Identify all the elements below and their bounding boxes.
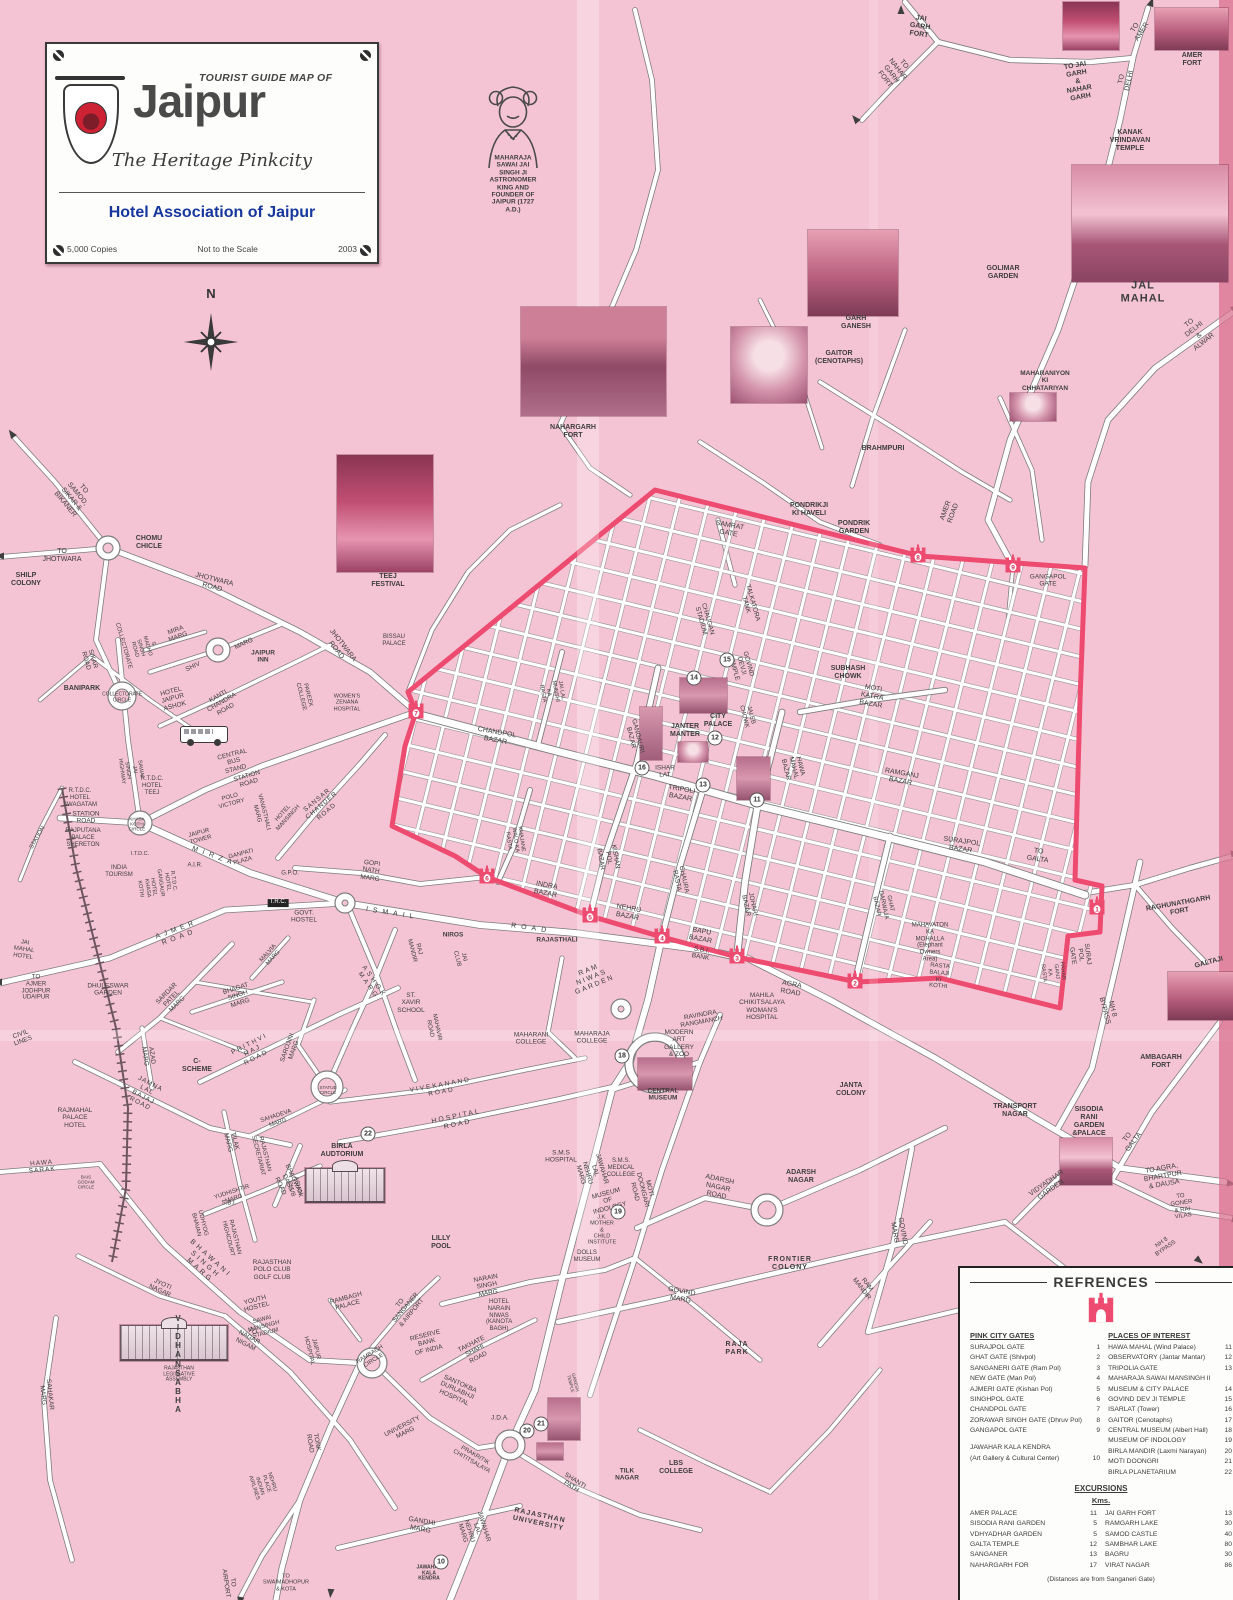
gates-heading: PINK CITY GATES: [970, 1331, 1100, 1340]
map-label: BAIS GODAM CIRCLE: [78, 1174, 95, 1189]
reference-row: GALTA TEMPLE12: [970, 1540, 1097, 1550]
place-number-marker-18: 18: [615, 1049, 630, 1064]
reference-row: MUSEUM OF INDOLOGY19: [1108, 1436, 1232, 1446]
map-label: MAHAVATON KA MOHALLA (Elephant Owners Ar…: [912, 923, 949, 964]
map-label: SURAJ POL GATE: [1068, 943, 1093, 967]
reference-row: SAMOD CASTLE40: [1105, 1530, 1232, 1540]
excursions-unit: Kms.: [970, 1496, 1232, 1505]
map-label: I.T.D.C.: [131, 851, 149, 857]
map-label: R.T.D.C. HOTEL GANGAUR: [156, 867, 178, 897]
reference-row: BAGRU30: [1105, 1550, 1232, 1560]
title-rule-left: [970, 1282, 1047, 1283]
svg-text:9: 9: [1011, 565, 1015, 572]
places-heading: PLACES OF INTEREST: [1108, 1331, 1232, 1340]
map-label: T.R.C.: [268, 899, 289, 907]
teej-festival-photo: [337, 455, 433, 572]
vidhan-sabha-sketch: [120, 1325, 228, 1361]
places-list: HAWA MAHAL (Wind Palace)11OBSERVATORY (J…: [1108, 1343, 1232, 1478]
map-label: MAHILA CHIKITSALAYA WOMAN'S HOSPITAL: [739, 992, 785, 1022]
city-gate-marker-6: 6: [479, 865, 495, 889]
map-label: NIROS: [443, 931, 464, 938]
reference-row: TRIPOLIA GATE13: [1108, 1364, 1232, 1374]
excursions-footnote: (Distances are from Sanganeri Gate): [970, 1576, 1232, 1583]
map-label: BIRLA AUDTORIUM: [321, 1143, 364, 1159]
map-label: S.B.I.: [222, 1201, 237, 1208]
city-gate-marker-5: 5: [582, 904, 598, 928]
screw-icon: [360, 245, 371, 256]
map-label: MAHARANIYON KI CHHATARIYAN: [1020, 370, 1069, 392]
reference-row: SANGANER13: [970, 1550, 1097, 1560]
map-label: GARH GANESH: [841, 315, 871, 331]
compass-rose: N: [176, 286, 246, 388]
title-footer: 5,000 Copies Not to the Scale 2003: [67, 244, 357, 254]
jaipur-tourist-map: MAHARAJA SAWAI JAI SINGH JI ASTRONOMER K…: [0, 0, 1233, 1600]
map-label: PAHAR GANJ KA RASTA: [1039, 961, 1066, 982]
svg-text:5: 5: [588, 915, 592, 922]
reference-row: CENTRAL MUSEUM (Albert Hall)18: [1108, 1426, 1232, 1436]
map-label: R.T.D.C. HOTEL SWAGATAM: [63, 788, 97, 808]
map-label: CITY PALACE: [704, 713, 732, 729]
city-gate-marker-1: 1: [1089, 896, 1105, 920]
map-label: GAITOR (CENOTAPHS): [815, 350, 863, 366]
reference-row: GANGAPOL GATE9: [970, 1426, 1100, 1436]
title-divider: [59, 192, 365, 193]
reference-row: SINGHPOL GATE6: [970, 1395, 1100, 1405]
map-label: JAI GARH FORT: [908, 14, 932, 41]
map-label: GOLIMAR GARDEN: [986, 265, 1019, 281]
map-label: SUBHASH CHOWK: [831, 665, 866, 681]
city-gate-marker-3: 3: [729, 945, 745, 969]
scale-note: Not to the Scale: [197, 244, 257, 254]
map-label: V I D H A N S A B H A: [175, 1314, 181, 1414]
place-number-marker-22: 22: [361, 1127, 376, 1142]
map-label: MOTI KATRA BAZAR: [858, 683, 885, 711]
garh-ganesh-photo: [808, 230, 898, 316]
place-number-marker-10: 10: [434, 1555, 449, 1570]
map-label: RASTA BALAJI KI KOTHI: [928, 963, 950, 992]
map-label: J.D.A.: [491, 1414, 509, 1421]
pink-gate-icon: [970, 1292, 1232, 1328]
map-label: RAJA PARK: [725, 1341, 748, 1357]
compass-star-icon: [176, 301, 246, 383]
map-label: LILLY POOL: [431, 1235, 451, 1251]
map-label: TO JHOTWARA: [42, 548, 81, 564]
svg-text:4: 4: [660, 936, 664, 943]
nahargarh-fort-photo: [521, 307, 666, 416]
map-label: TRANSPORT NAGAR: [993, 1103, 1037, 1119]
reference-row: GOVIND DEV JI TEMPLE15: [1108, 1395, 1232, 1405]
reference-row: NEW GATE (Man Pol)4: [970, 1374, 1100, 1384]
map-label: JAI MAHAL HOTEL: [12, 938, 35, 961]
map-label: WOMEN'S ZENANA HOSPITAL: [334, 694, 361, 713]
svg-text:3: 3: [735, 956, 739, 963]
map-label: RAJASTHAN LEGISLATIVE ASSEMBLY: [163, 1366, 195, 1383]
map-label: BISSAU PALACE: [382, 634, 405, 648]
map-label: JAIPUR INN: [251, 650, 275, 665]
birla-auditorium-sketch: [305, 1168, 385, 1203]
map-label: GOPI NATH MARG: [360, 859, 382, 884]
title-rule-right: [1155, 1282, 1232, 1283]
map-label: CENTRAL MUSEUM: [648, 1088, 679, 1103]
galtaji-photo: [1168, 972, 1233, 1020]
map-label: J.K. MOTHER & CHILD INSTITUTE: [588, 1214, 616, 1245]
map-label: INDIA TOURISM: [105, 865, 133, 879]
map-label: SAHAKAR MARG: [37, 1379, 55, 1411]
map-label: C-SCHEME: [182, 1058, 212, 1074]
jal-mahal-photo: [1072, 165, 1228, 282]
place-number-marker-12: 12: [708, 731, 723, 746]
reference-row: SURAJPOL GATE1: [970, 1343, 1100, 1353]
reference-row: MUSEUM & CITY PALACE14: [1108, 1385, 1232, 1395]
map-label: G.P.O.: [281, 871, 299, 878]
place-number-marker-20: 20: [520, 1424, 535, 1439]
map-label: TONK ROAD: [304, 1432, 322, 1453]
svg-text:1: 1: [1095, 907, 1099, 914]
logo-hanger: [55, 76, 125, 80]
city-gate-marker-4: 4: [654, 925, 670, 949]
map-label: ISHAR LAT: [655, 765, 675, 780]
map-label: COLLECTORATE CIRCLE: [102, 692, 142, 703]
references-title: REFRENCES: [1053, 1274, 1148, 1290]
map-label: TILK NAGAR: [615, 1468, 639, 1483]
city-gate-marker-7: 7: [408, 700, 424, 724]
map-label: DOLLS MUSEUM: [574, 1250, 601, 1264]
map-label: STATION ROAD: [72, 811, 99, 826]
amer-fort-photo: [1155, 8, 1228, 50]
map-label: GANGAPOL GATE: [1030, 574, 1066, 589]
reference-row: SISODIA RANI GARDEN5: [970, 1519, 1097, 1529]
references-panel: REFRENCES PINK CITY GATES SURAJPOL GATE1…: [958, 1266, 1233, 1600]
map-label: CHOMU CHICLE: [136, 535, 162, 551]
map-label: ST. XAVIR SCHOOL: [397, 992, 424, 1014]
place-number-marker-15: 15: [720, 653, 735, 668]
screw-icon: [360, 50, 371, 61]
reference-row: BIRLA MANDIR (Laxmi Narayan)20: [1108, 1447, 1232, 1457]
svg-text:6: 6: [485, 876, 489, 883]
place-number-marker-21: 21: [534, 1417, 549, 1432]
svg-text:7: 7: [414, 711, 418, 718]
map-label: JANTER MANTER: [670, 723, 700, 739]
map-label: RAJPUTANA PALACE SHERETON: [65, 828, 100, 848]
reference-row: GHAT GATE (Shivpol)2: [970, 1353, 1100, 1363]
screw-icon: [53, 50, 64, 61]
svg-text:8: 8: [916, 555, 920, 562]
gates-list: SURAJPOL GATE1GHAT GATE (Shivpol)2SANGAN…: [970, 1343, 1100, 1464]
bus-icon: [180, 726, 228, 743]
map-label: A.I.R.: [187, 863, 202, 870]
jantar-mantar-photo: [678, 742, 708, 762]
map-label: HOTEL NARAIN NIWAS (KANOTA BAGH): [486, 1299, 512, 1333]
birla-mandir-photo: [548, 1398, 580, 1440]
city-gate-marker-8: 8: [910, 544, 926, 568]
reference-row: (Art Gallery & Cultural Center)10: [970, 1454, 1100, 1464]
reference-row: ISARLAT (Tower)16: [1108, 1405, 1232, 1415]
map-label: AMBAGARH FORT: [1140, 1054, 1182, 1070]
reference-row: BIRLA PLANETARIUM22: [1108, 1468, 1232, 1478]
reference-row: MAHARAJA SAWAI MANSINGH II: [1108, 1374, 1232, 1384]
map-label: TO AJMER JODHPUR UDAIPUR: [21, 974, 50, 1001]
map-label: TO GALTA: [1026, 847, 1050, 866]
excursions-heading: EXCURSIONS: [970, 1484, 1232, 1493]
map-label: DHULESWAR GARDEN: [87, 983, 128, 998]
city-palace-photo: [680, 678, 727, 713]
map-label: SISODIA RANI GARDEN &PALACE: [1072, 1106, 1105, 1138]
map-subtitle: The Heritage Pinkcity: [47, 150, 377, 171]
city-gate-marker-9: 9: [1005, 554, 1021, 578]
map-label: TO GONER & RAI VILAS: [1169, 1192, 1195, 1222]
map-label: MAHARANI COLLEGE: [514, 1032, 548, 1047]
jawahar-kala-kendra-photo: [537, 1443, 563, 1460]
map-label: ADARSH NAGAR: [786, 1169, 816, 1185]
reference-row: RAMGARH LAKE30: [1105, 1519, 1232, 1529]
reference-row: AJMERI GATE (Kishan Pol)5: [970, 1385, 1100, 1395]
year-label: 2003: [338, 244, 357, 254]
map-label: NAHARGARH FORT: [550, 424, 596, 440]
map-label: BRAHMPURI: [862, 445, 905, 453]
map-label: AZAD MARG: [139, 1045, 156, 1066]
map-label: FRONTIER COLONY: [768, 1256, 812, 1272]
map-label: RAJASTHAN POLO CLUB GOLF CLUB: [253, 1259, 292, 1281]
map-label: JANTA COLONY: [836, 1082, 866, 1098]
reference-row: VDHYADHAR GARDEN5: [970, 1530, 1097, 1540]
excursions-right: JAI GARH FORT13RAMGARH LAKE30SAMOD CASTL…: [1105, 1509, 1232, 1571]
association-name: Hotel Association of Jaipur: [47, 204, 377, 222]
place-number-marker-11: 11: [750, 793, 765, 808]
map-label: JAI LAL MUNSHI KA RASTA: [538, 679, 566, 705]
reference-row: CHANDPOL GATE7: [970, 1405, 1100, 1415]
excursions-left: AMER PALACE11SISODIA RANI GARDEN5VDHYADH…: [970, 1509, 1097, 1571]
map-label: PONDRIKJI KI HAVELI: [790, 502, 828, 518]
map-label: PONDRIK GARDEN: [838, 520, 870, 536]
place-number-marker-19: 19: [611, 1205, 626, 1220]
map-label: AGRA ROAD: [780, 979, 803, 998]
reference-row: HAWA MAHAL (Wind Palace)11: [1108, 1343, 1232, 1353]
copies-note: 5,000 Copies: [67, 244, 117, 254]
map-label: SHILP COLONY: [11, 572, 41, 588]
central-museum-photo: [638, 1058, 692, 1090]
elephant-procession-photo: [1063, 2, 1119, 50]
place-number-marker-16: 16: [635, 761, 650, 776]
map-label: RAJASTHALI: [536, 936, 577, 943]
reference-row: OBSERVATORY (Jantar Mantar)12: [1108, 1353, 1232, 1363]
map-label: JAL MAHAL: [1121, 279, 1166, 304]
screw-icon: [53, 245, 64, 256]
map-label: KISHAN POL BAZAR: [595, 844, 621, 872]
map-label: MAHARAJA SAWAI JAI SINGH JI ASTRONOMER K…: [490, 154, 537, 213]
reference-row: SAMBHAR LAKE80: [1105, 1540, 1232, 1550]
map-label: TO SWAIMADHOPUR & KOTA: [263, 1574, 309, 1593]
map-label: KHAJANE WALO KA RASTA: [504, 826, 526, 854]
reference-row: JAWAHAR KALA KENDRA: [970, 1443, 1100, 1453]
place-number-marker-14: 14: [687, 671, 702, 686]
compass-north-label: N: [176, 286, 246, 301]
map-label: KHASA KOTHI CIRCLE: [129, 816, 146, 831]
map-label: MAHARAJA COLLEGE: [574, 1031, 609, 1046]
map-label: TEEJ FESTIVAL: [371, 573, 404, 589]
place-number-marker-13: 13: [696, 778, 711, 793]
title-card: TOURIST GUIDE MAP OF Jaipur The Heritage…: [45, 42, 379, 264]
map-label: STATUE CIRCLE: [319, 1085, 336, 1095]
reference-row: AMER PALACE11: [970, 1509, 1097, 1519]
reference-row: SANGANERI GATE (Ram Pol)3: [970, 1364, 1100, 1374]
reference-row: GAITOR (Cenotaphs)17: [1108, 1416, 1232, 1426]
map-label: HAWA SARAK: [28, 1158, 56, 1175]
map-label: LBS COLLEGE: [659, 1460, 693, 1476]
map-label: AMER FORT: [1182, 52, 1203, 68]
gaitor-cenotaph-photo: [731, 327, 807, 403]
maharaniyon-chhatariyan-photo: [1010, 393, 1056, 421]
map-label: HOTEL KHASA KOTHI: [136, 878, 157, 899]
map-label: KANAK VRINDAVAN TEMPLE: [1110, 129, 1151, 153]
reference-row: MOTI DOONGRI21: [1108, 1457, 1232, 1467]
map-label: RAJMAHAL PALACE HOTEL: [58, 1107, 93, 1129]
map-label: MODERN ART GALLERY & ZOO: [664, 1029, 694, 1059]
city-gate-marker-2: 2: [847, 970, 863, 994]
svg-text:2: 2: [853, 981, 857, 988]
map-label: SAWAI JAI SINGH HIGHWAY: [117, 756, 145, 785]
map-label: S.B.I. BANK: [691, 945, 711, 963]
map-label: NARAIN SINGH MARG: [473, 1273, 501, 1299]
reference-row: VIRAT NAGAR86: [1105, 1561, 1232, 1571]
reference-row: NAHARGARH FOR17: [970, 1561, 1097, 1571]
reference-row: ZORAWAR SINGH GATE (Dhruv Pol)8: [970, 1416, 1100, 1426]
map-label: GOVT. HOSTEL: [291, 910, 317, 925]
map-title: Jaipur: [133, 74, 265, 128]
reference-row: JAI GARH FORT13: [1105, 1509, 1232, 1519]
map-label: BANIPARK: [64, 685, 100, 693]
